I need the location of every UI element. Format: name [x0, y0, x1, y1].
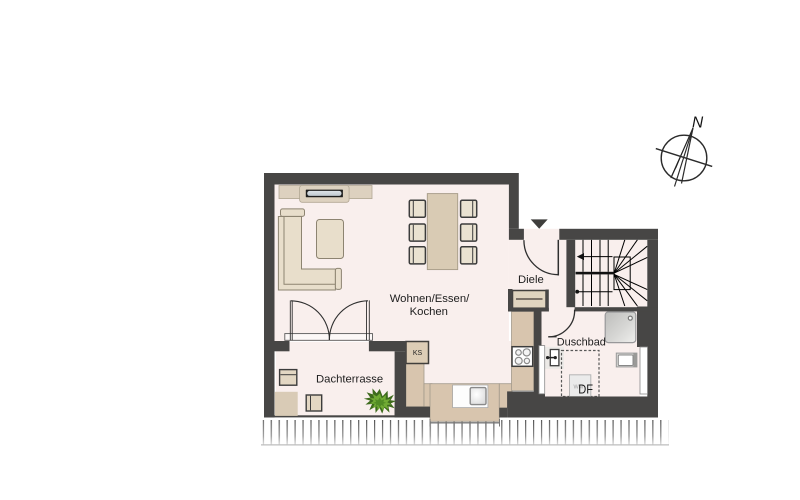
svg-text:Dachterrasse: Dachterrasse: [316, 373, 383, 385]
svg-text:Wohnen/Essen/: Wohnen/Essen/: [390, 293, 470, 305]
svg-text:KS: KS: [413, 350, 423, 357]
svg-text:Kochen: Kochen: [410, 306, 448, 318]
svg-text:DF: DF: [578, 383, 593, 397]
svg-text:Diele: Diele: [518, 274, 544, 286]
svg-text:Duschbad: Duschbad: [557, 337, 606, 349]
svg-text:N: N: [692, 114, 704, 131]
